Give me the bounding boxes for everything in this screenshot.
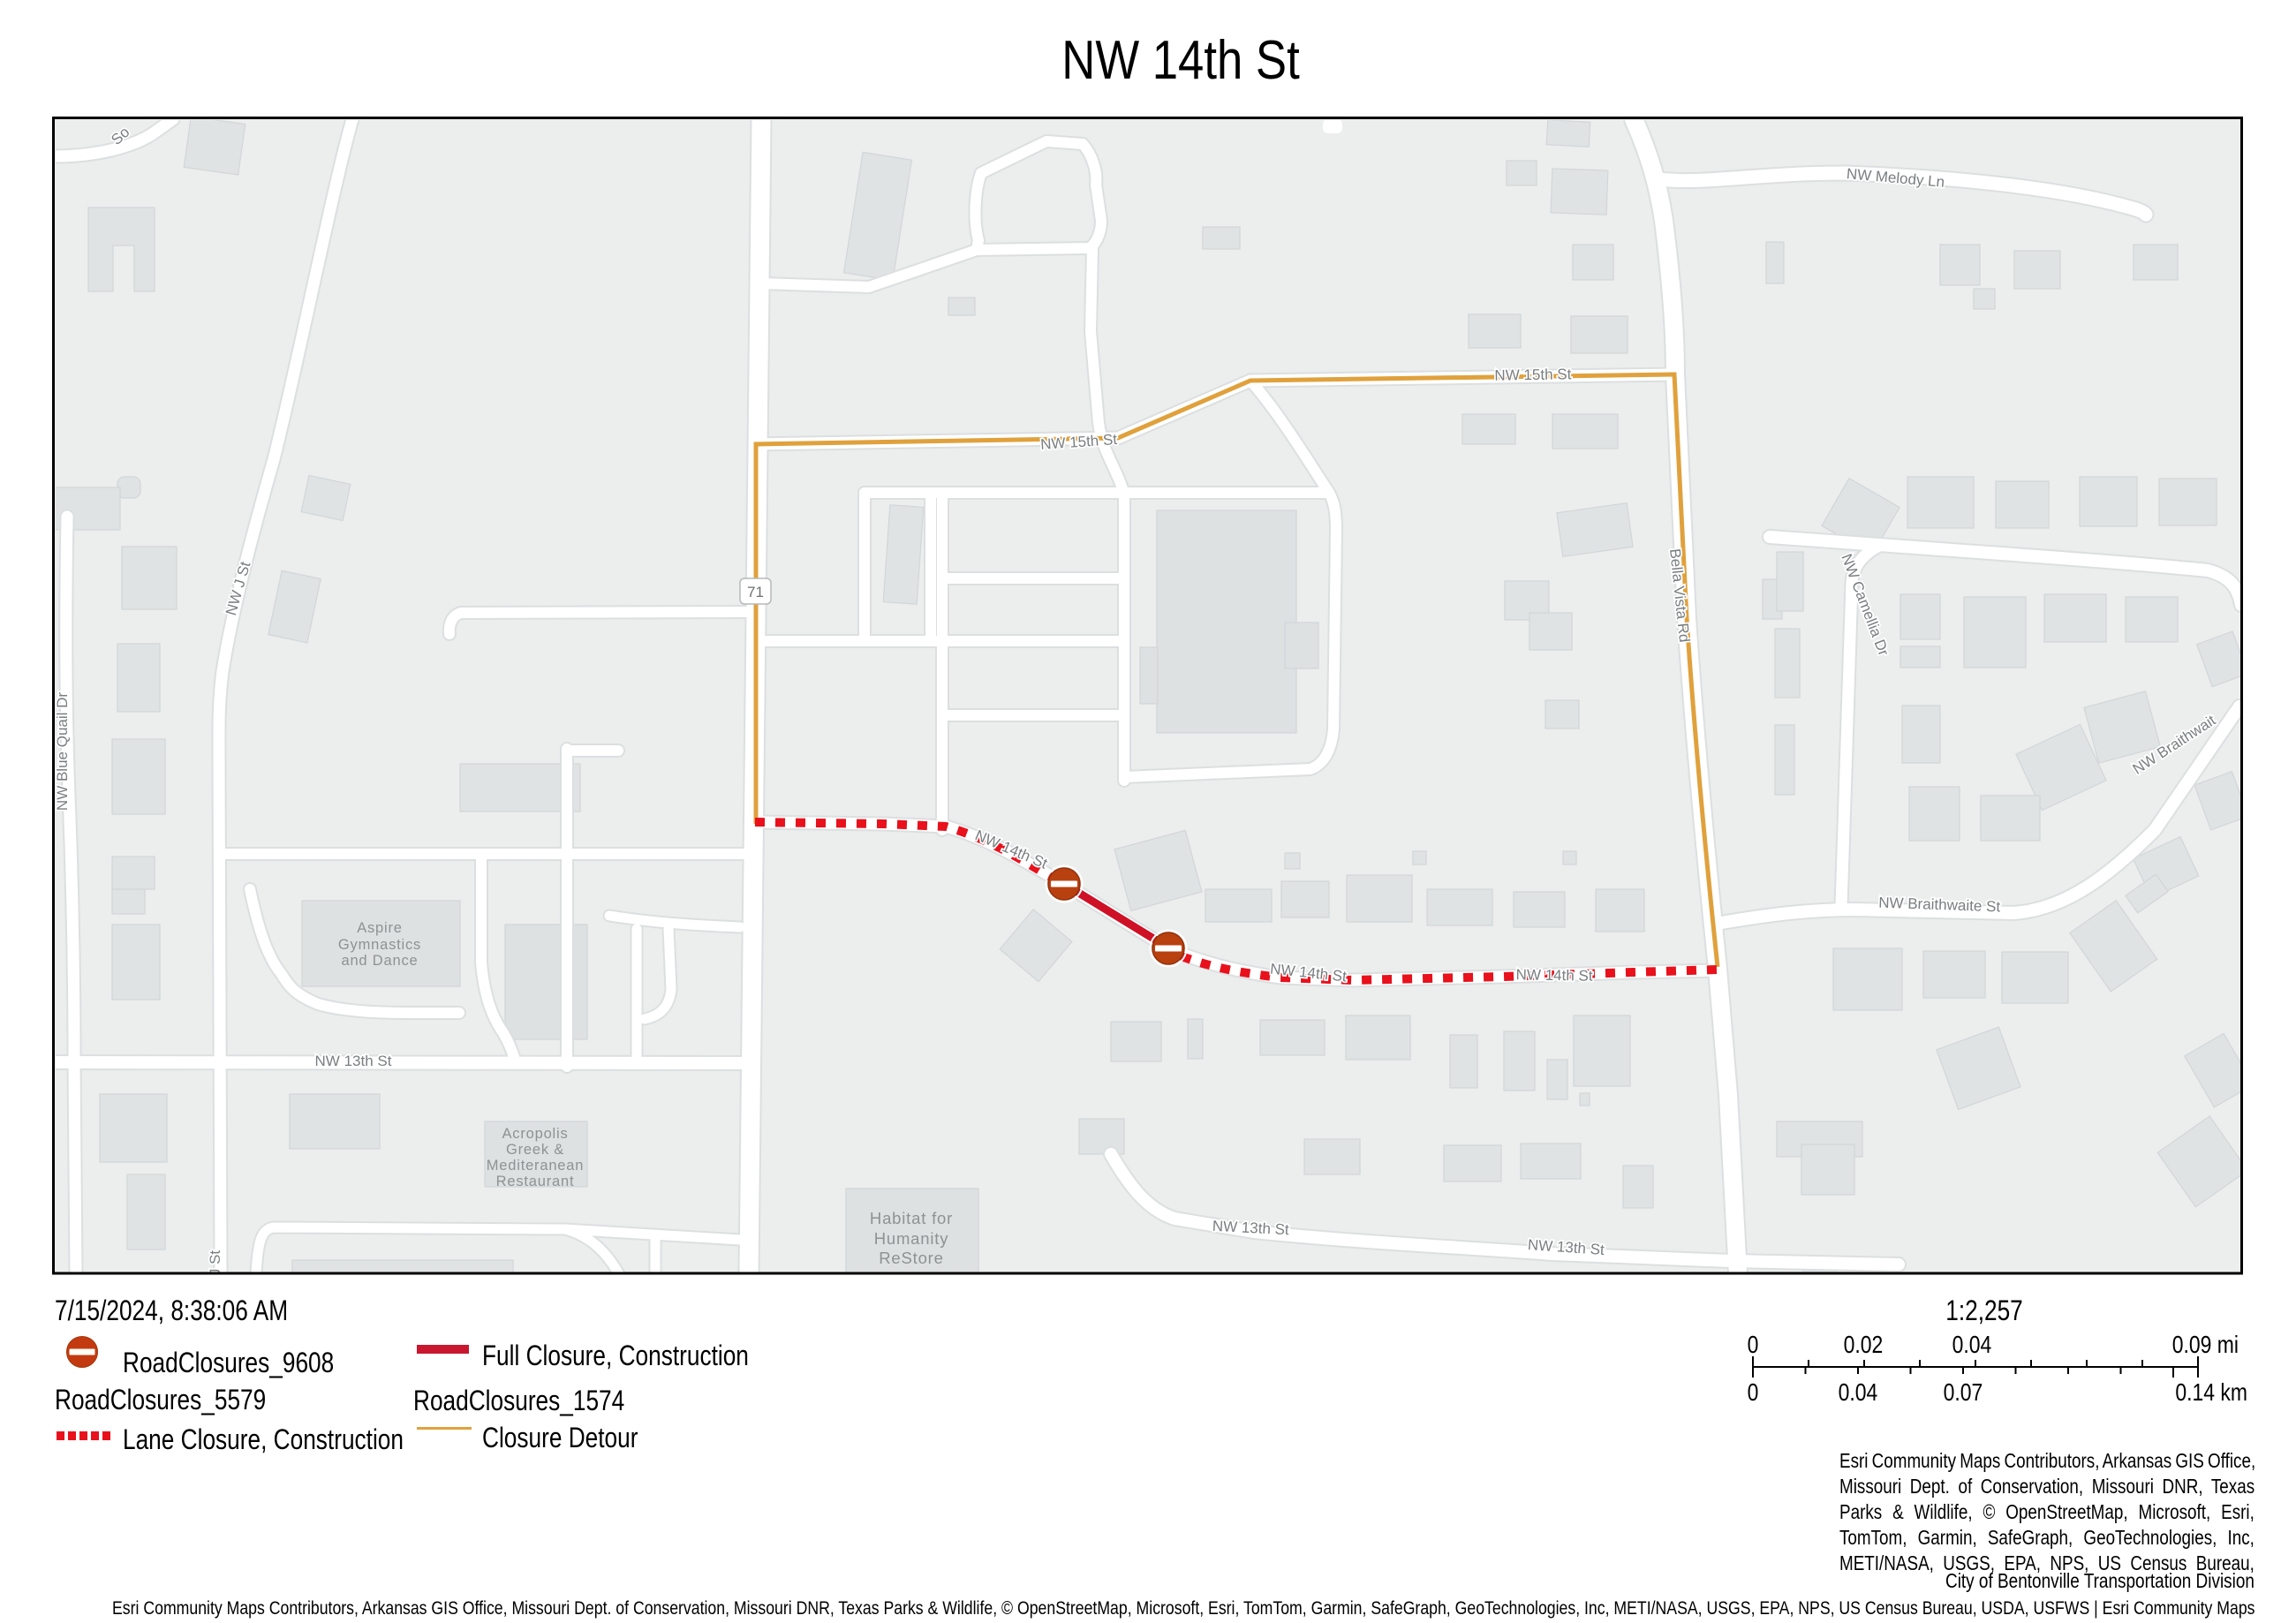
svg-text:Mediteranean: Mediteranean — [487, 1158, 585, 1174]
svg-text:Aspire: Aspire — [357, 920, 403, 936]
svg-text:0.02: 0.02 — [1844, 1332, 1884, 1359]
svg-text:Humanity: Humanity — [874, 1229, 949, 1248]
svg-text:NW Blue Quail Dr: NW Blue Quail Dr — [54, 692, 71, 811]
svg-text:0.04: 0.04 — [1839, 1379, 1878, 1407]
svg-text:Habitat for: Habitat for — [870, 1209, 953, 1227]
svg-text:NW 14th St: NW 14th St — [1515, 966, 1593, 985]
svg-text:ReStore: ReStore — [879, 1249, 943, 1267]
svg-text:0: 0 — [1748, 1379, 1759, 1407]
svg-text:0.04: 0.04 — [1952, 1332, 1992, 1359]
svg-text:0: 0 — [1748, 1332, 1759, 1359]
svg-text:Gymnastics: Gymnastics — [338, 937, 421, 953]
svg-text:and Dance: and Dance — [341, 953, 418, 969]
svg-text:NW 15th St: NW 15th St — [1494, 366, 1572, 384]
svg-text:0.14 km: 0.14 km — [2175, 1379, 2247, 1407]
svg-text:Restaurant: Restaurant — [496, 1174, 575, 1189]
svg-text:0.09 mi: 0.09 mi — [2172, 1332, 2239, 1359]
svg-text:Greek &: Greek & — [506, 1142, 564, 1158]
svg-text:NW 13th St: NW 13th St — [315, 1053, 392, 1069]
svg-text:0.07: 0.07 — [1944, 1379, 1983, 1407]
svg-text:71: 71 — [747, 584, 764, 600]
svg-text:Acropolis: Acropolis — [502, 1126, 568, 1142]
